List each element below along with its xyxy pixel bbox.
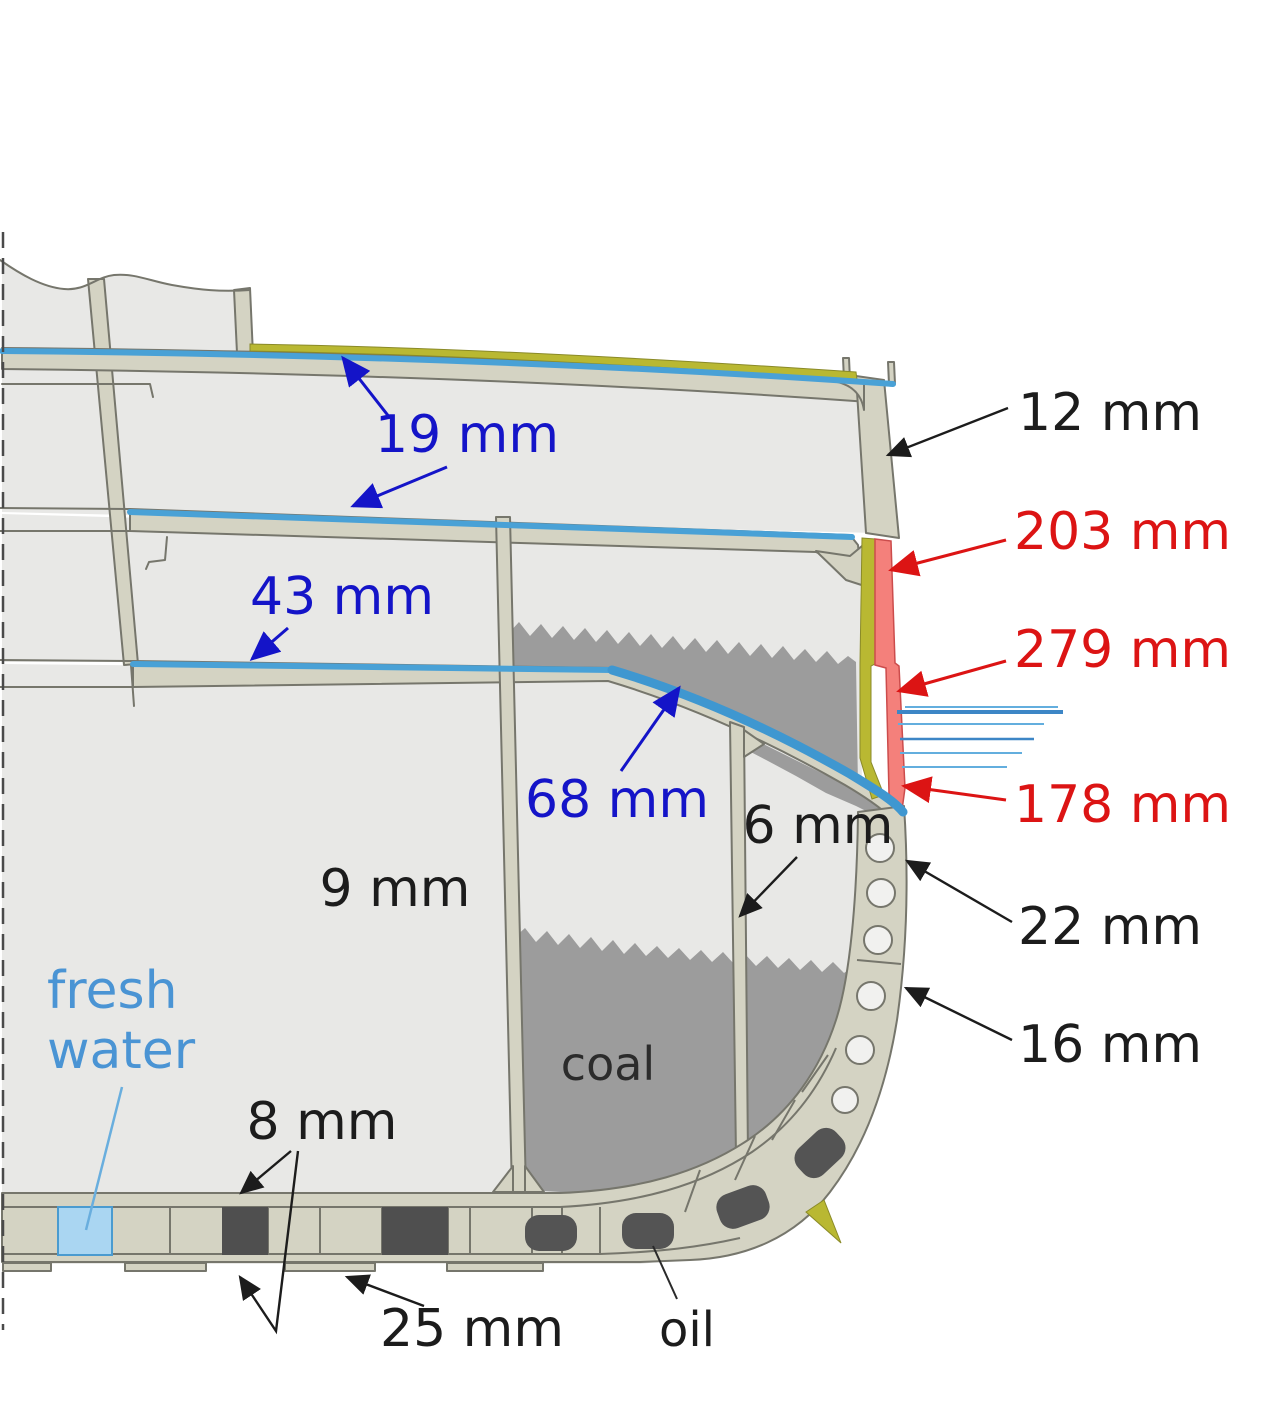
arrow-279mm xyxy=(899,661,1006,691)
lightening-hole xyxy=(867,879,895,907)
label-inner-bottom: 8 mm xyxy=(247,1092,398,1152)
dark-tank-cell xyxy=(382,1207,448,1255)
bottom-doubler-strips xyxy=(3,1263,543,1271)
bulwark-stub-outer xyxy=(888,362,895,384)
dark-tank-cell xyxy=(222,1207,268,1255)
fresh-water-cell xyxy=(58,1207,112,1255)
lightening-hole xyxy=(864,926,892,954)
hull-armor-diagram: 19 mm 43 mm 68 mm 12 mm 203 mm 279 mm 17… xyxy=(0,0,1280,1422)
diagram-svg: 19 mm 43 mm 68 mm 12 mm 203 mm 279 mm 17… xyxy=(0,0,1280,1422)
oil-tank-cell xyxy=(525,1215,577,1251)
doubler-strip xyxy=(125,1263,206,1271)
label-side-lower: 16 mm xyxy=(1018,1015,1202,1075)
arrow-203mm xyxy=(891,540,1006,570)
label-shell-upper: 12 mm xyxy=(1018,383,1202,443)
lightening-hole xyxy=(857,982,885,1010)
arrow-12mm xyxy=(888,408,1008,455)
label-bunker-bulkhead: 6 mm xyxy=(743,796,894,856)
label-longitudinal-bulkhead: 9 mm xyxy=(320,859,471,919)
oil-tank-cell xyxy=(622,1213,674,1249)
label-coal: coal xyxy=(561,1037,655,1091)
label-belt-middle: 279 mm xyxy=(1014,620,1231,680)
label-fresh-water-line2: water xyxy=(47,1021,196,1081)
lightening-hole xyxy=(832,1087,858,1113)
arrow-178mm xyxy=(904,786,1006,800)
doubler-strip xyxy=(3,1263,51,1271)
arrow-22mm xyxy=(907,861,1012,922)
label-deck-upper: 19 mm xyxy=(375,405,559,465)
waterline-hatching xyxy=(897,707,1063,767)
label-fresh-water-line1: fresh xyxy=(47,961,178,1021)
label-outer-bottom: 25 mm xyxy=(380,1299,564,1359)
doubler-strip xyxy=(285,1263,375,1271)
label-side-upper: 22 mm xyxy=(1018,897,1202,957)
lightening-hole xyxy=(846,1036,874,1064)
label-deck-slope: 68 mm xyxy=(525,770,709,830)
label-oil: oil xyxy=(659,1302,715,1358)
doubler-strip xyxy=(447,1263,543,1271)
armor-belt-red xyxy=(875,539,905,810)
label-belt-lower: 178 mm xyxy=(1014,775,1231,835)
label-deck-middle: 43 mm xyxy=(250,567,434,627)
label-belt-upper: 203 mm xyxy=(1014,502,1231,562)
arrow-16mm xyxy=(906,988,1012,1040)
